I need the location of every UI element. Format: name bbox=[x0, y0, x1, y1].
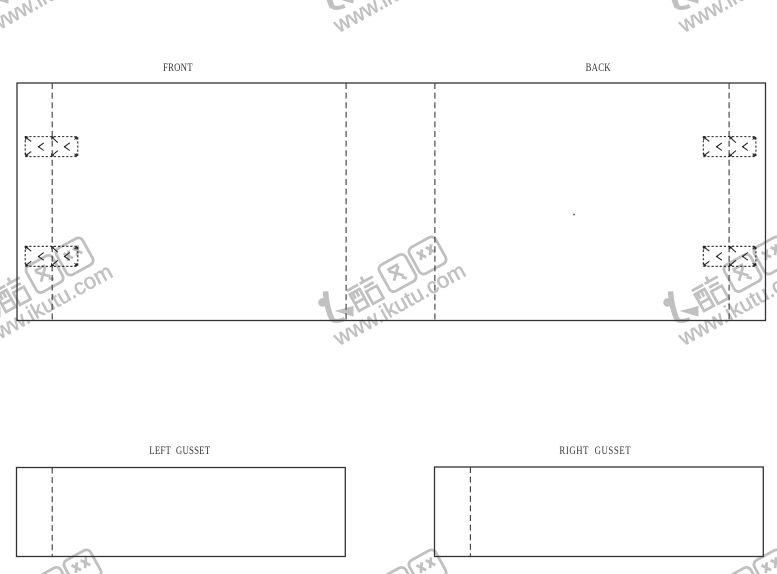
svg-text:BACK: BACK bbox=[586, 62, 611, 75]
svg-text:FRONT: FRONT bbox=[163, 62, 193, 75]
svg-text:RIGHT GUSSET: RIGHT GUSSET bbox=[559, 445, 631, 458]
svg-text:LEFT GUSSET: LEFT GUSSET bbox=[149, 445, 210, 458]
